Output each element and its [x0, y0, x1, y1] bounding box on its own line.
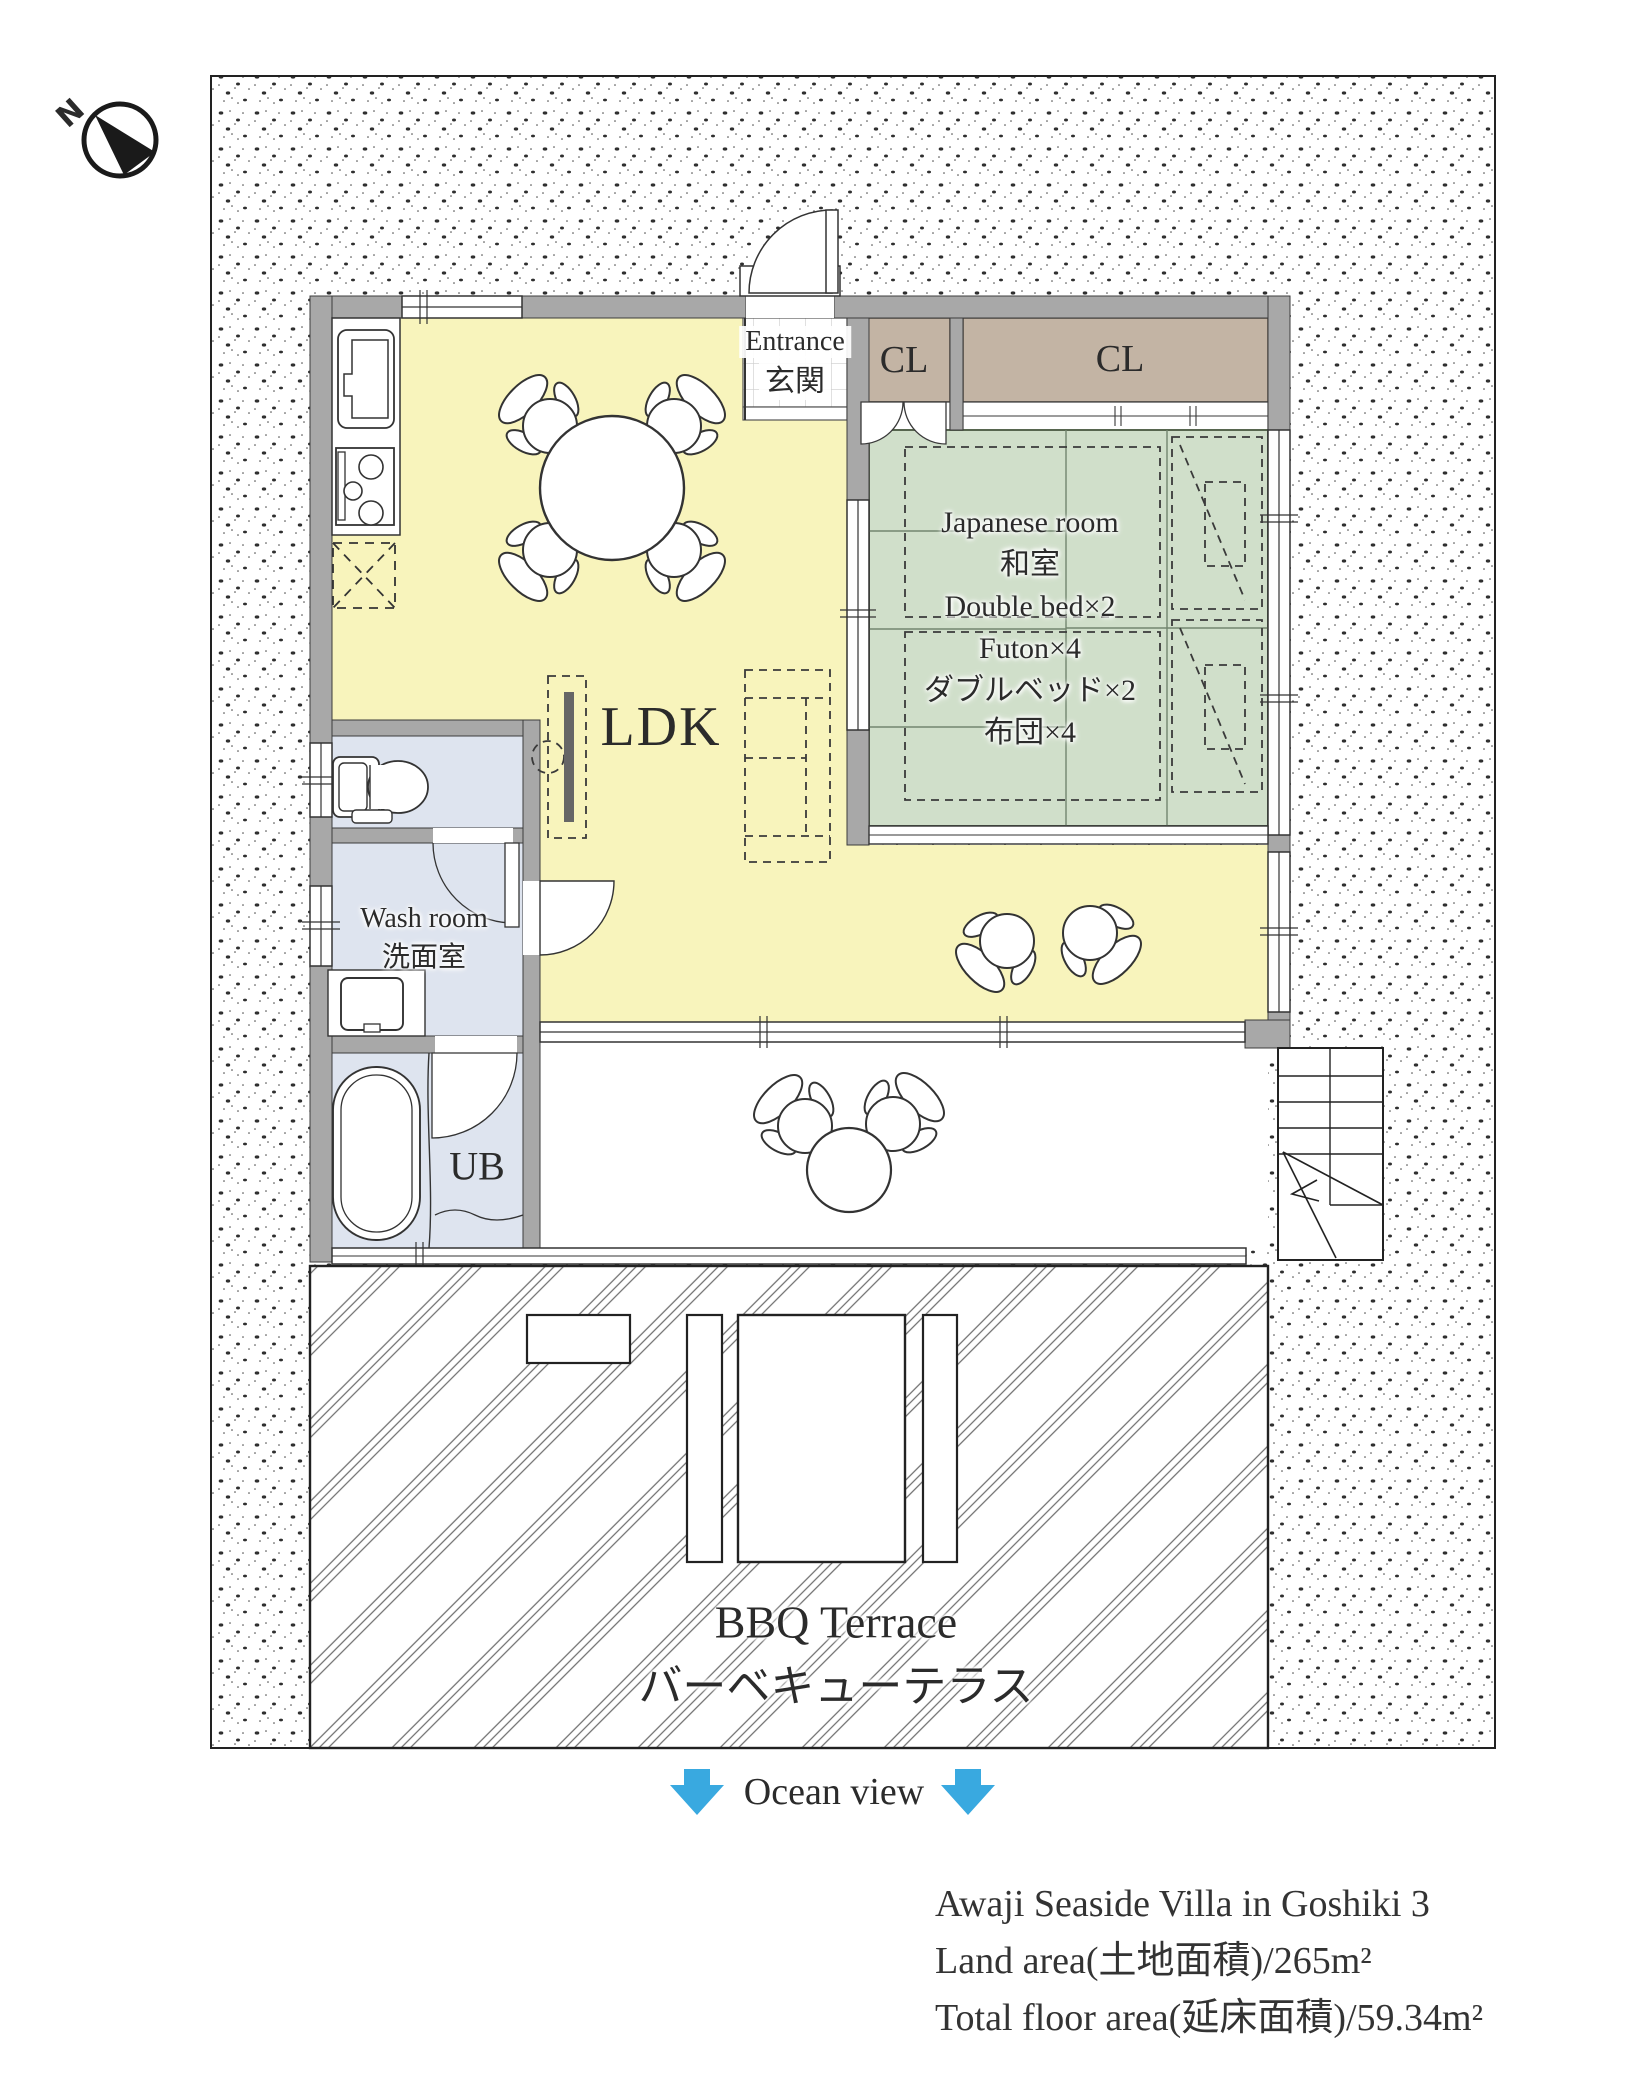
wash-basin	[328, 970, 425, 1036]
bbq-terrace-label-en: BBQ Terrace	[715, 1596, 957, 1649]
property-title: Awaji Seaside Villa in Goshiki 3	[935, 1876, 1483, 1933]
bbq-terrace-label-jp: バーベキューテラス	[638, 1650, 1033, 1714]
dining-table	[540, 416, 684, 560]
closet-label-1: CL	[880, 338, 929, 382]
compass-icon	[84, 104, 156, 176]
entrance-label-jp: 玄関	[759, 356, 831, 400]
toilet-door-opening	[433, 828, 513, 843]
entrance-step	[743, 407, 847, 420]
wash-room-label-jp: 洗面室	[382, 935, 466, 975]
japanese-room-line: Double bed×2	[924, 586, 1136, 628]
burner	[344, 482, 362, 500]
tv	[564, 692, 574, 822]
land-area: Land area(土地面積)/265m²	[935, 1933, 1483, 1990]
wash-room-opening	[523, 881, 540, 955]
japanese-room-line: 和室	[924, 544, 1136, 586]
veranda-table	[807, 1128, 891, 1212]
ocean-view-label: Ocean view	[744, 1770, 924, 1814]
japanese-room-label: Japanese room 和室 Double bed×2 Futon×4 ダブ…	[924, 502, 1136, 754]
japanese-room-line: Futon×4	[924, 628, 1136, 670]
total-floor-area: Total floor area(延床面積)/59.34m²	[935, 1990, 1483, 2047]
wash-room-door-leaf	[505, 843, 519, 927]
burner	[359, 455, 383, 479]
down-arrow-icon	[670, 1769, 724, 1815]
stairs	[1278, 1048, 1383, 1260]
terrace-grill	[527, 1315, 630, 1363]
japanese-room-line: Japanese room	[924, 502, 1136, 544]
bath-door-opening	[435, 1036, 517, 1053]
burner	[359, 501, 383, 525]
down-arrow-icon	[941, 1769, 995, 1815]
kitchen-sink	[338, 330, 394, 428]
terrace-bench-right	[923, 1315, 957, 1562]
terrace-table	[738, 1315, 905, 1562]
terrace-bench-left	[687, 1315, 722, 1562]
property-info: Awaji Seaside Villa in Goshiki 3 Land ar…	[935, 1876, 1483, 2047]
closet-label-2: CL	[1096, 337, 1145, 381]
entrance-door-leaf	[826, 210, 838, 293]
japanese-room-line: ダブルベッド×2	[924, 670, 1136, 712]
entrance-label-en: Entrance	[739, 326, 851, 358]
wash-room-label-en: Wash room	[360, 903, 488, 935]
japanese-room-line: 布団×4	[924, 712, 1136, 754]
ldk-label: LDK	[600, 695, 721, 759]
unit-bath-label: UB	[449, 1143, 505, 1190]
floor-plan-page: N Entrance 玄関 CL CL Japanese room 和室 Dou…	[0, 0, 1652, 2098]
